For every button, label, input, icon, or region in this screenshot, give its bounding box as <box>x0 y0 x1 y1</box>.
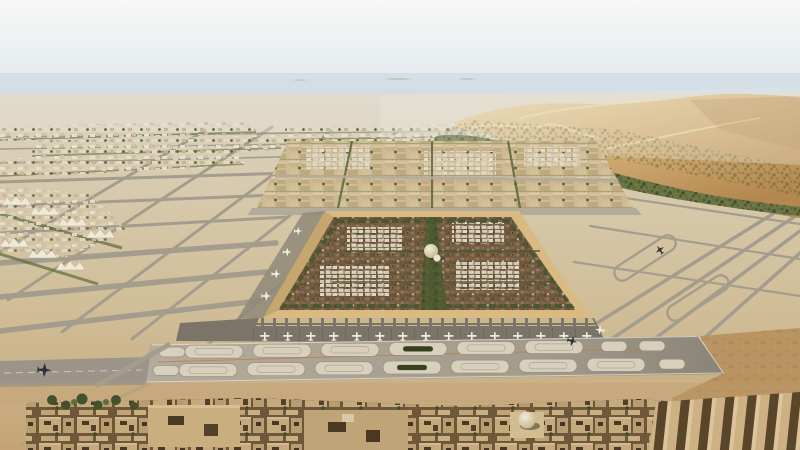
gate-canopies <box>256 318 596 326</box>
island <box>587 358 645 371</box>
tree <box>103 399 109 405</box>
white-court <box>342 414 354 422</box>
midrise-district <box>248 141 642 215</box>
island <box>247 363 305 376</box>
district-white-cluster <box>524 147 580 167</box>
courtyard-block <box>304 410 408 450</box>
island <box>315 362 373 375</box>
tree <box>111 395 121 405</box>
courtyard <box>204 424 218 436</box>
scene-svg <box>0 0 800 450</box>
island <box>601 341 627 351</box>
island-green <box>389 342 447 355</box>
island <box>185 345 243 358</box>
tree <box>77 394 88 405</box>
island <box>525 341 583 354</box>
island <box>153 365 179 375</box>
foreground-dome <box>519 412 536 429</box>
island <box>457 342 515 355</box>
island <box>639 341 665 351</box>
island <box>321 343 379 356</box>
tree <box>47 395 57 405</box>
island <box>451 360 509 373</box>
island-green <box>383 361 441 374</box>
island <box>659 359 685 369</box>
courtyard <box>366 430 380 442</box>
district-white-cluster <box>424 151 496 175</box>
medina-white-cluster <box>456 262 520 290</box>
island <box>519 359 577 372</box>
small-dome <box>433 254 440 261</box>
tree <box>62 401 71 410</box>
tree <box>94 401 103 410</box>
medina-white-cluster <box>452 222 504 244</box>
courtyard <box>328 422 346 432</box>
foreground-dome-building <box>510 412 544 439</box>
tree <box>71 399 77 405</box>
courtyard-block <box>148 405 240 447</box>
runway-surface <box>0 357 150 387</box>
courtyard <box>168 416 184 425</box>
render-image <box>0 0 800 450</box>
medina-white-cluster <box>347 227 403 253</box>
island <box>179 364 237 377</box>
district-white-cluster <box>306 147 370 169</box>
tree <box>130 402 138 410</box>
island <box>253 344 311 357</box>
block-lit-edge <box>148 405 240 408</box>
